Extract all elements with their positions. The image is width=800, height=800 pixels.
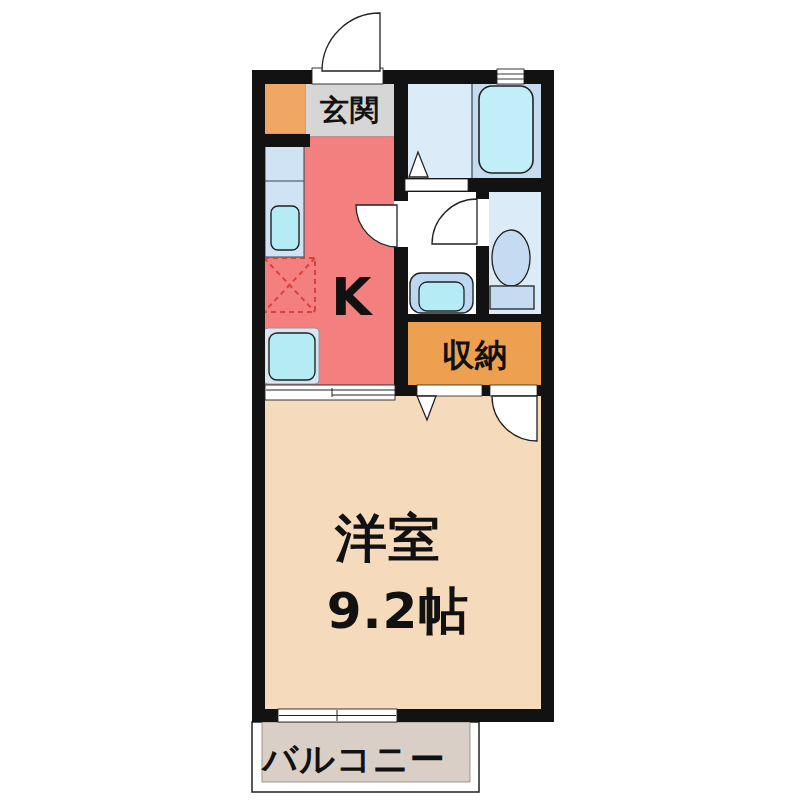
floor-plan-page: 玄関 K 収納 洋室 9.2帖 バルコニー — [0, 0, 800, 800]
kitchen-sink — [271, 206, 299, 250]
washing-machine — [269, 333, 315, 380]
bathtub — [479, 86, 533, 173]
western-room-size-label: 9.2帖 — [327, 582, 470, 640]
entrance-door-swing — [322, 13, 380, 71]
wall-post-storage-right — [537, 385, 554, 396]
wash-basin — [419, 282, 464, 311]
kitchen-sliding-door — [265, 385, 395, 400]
floor-plan-drawing: 玄関 K 収納 洋室 9.2帖 バルコニー — [0, 0, 800, 800]
balcony-label: バルコニー — [260, 739, 445, 779]
storage-label: 収納 — [442, 336, 508, 374]
wall-genkan-bath — [394, 83, 408, 192]
wall-left — [252, 70, 265, 722]
toilet-doorway — [476, 199, 489, 246]
balcony-window — [278, 709, 397, 722]
bath-doorway — [405, 179, 468, 191]
shoe-cabinet — [258, 83, 306, 134]
bath-window — [497, 69, 524, 84]
wall-shoe-cabinet — [252, 134, 310, 147]
toilet-bowl — [492, 230, 530, 286]
wall-post-storage-left — [408, 385, 417, 396]
kitchen-label: K — [331, 267, 373, 327]
wall-post-storage-mid — [482, 385, 490, 396]
wall-top-mid — [383, 70, 499, 84]
genkan-label: 玄関 — [319, 93, 380, 127]
closet-opening-left — [417, 385, 482, 396]
wall-above-storage — [408, 314, 554, 322]
western-room-label: 洋室 — [334, 508, 441, 568]
closet-opening-right — [490, 385, 537, 396]
toilet-tank — [490, 286, 534, 309]
